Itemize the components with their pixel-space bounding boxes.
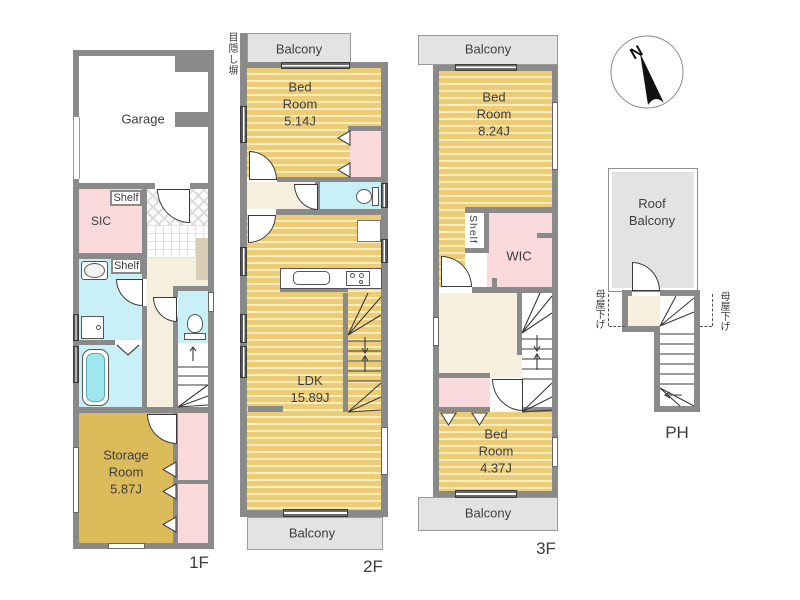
wall [190,183,208,189]
bathtub-inner [86,353,105,402]
toilet-2f-bowl [356,189,372,204]
closet-1f-lower [178,484,208,543]
window-bedroom-3f-small [552,437,558,467]
balcony-door-3f-south [455,490,517,498]
window-toilet-1f [208,292,214,312]
balcony-door-2f-north [281,62,350,69]
washing-machine-knob [96,325,101,330]
window-bedroom-3f-large [552,102,558,170]
closet-1f-upper [178,413,208,480]
ldk-label: LDK 15.89J [290,373,329,407]
floor-plan-canvas: Shelf Shelf Garage SIC Storage Room 5.87… [0,0,800,600]
balcony-label: Balcony [465,42,511,59]
stairs-3f [522,293,552,412]
wall [348,126,381,131]
storage-room-label: Storage Room 5.87J [103,448,149,499]
sic-label: SIC [91,214,111,230]
stairs-ph [660,296,694,406]
bedroom-2f-label: Bed Room 5.14J [283,80,318,131]
roof-lowering-left-label: 母屋下げ [591,289,606,339]
toilet-1f-tank [184,333,206,340]
floor-label-3f: 3F [536,538,556,560]
roof-balcony-label: Roof Balcony [629,196,675,230]
closet-door-mark-icon [163,517,176,532]
wall [79,340,115,345]
balcony-label: Balcony [276,42,322,59]
window-washroom [73,314,79,341]
wall [465,207,552,213]
wall [439,407,490,412]
garage-door-opening [73,117,80,179]
privacy-screen-wall [240,33,247,65]
entry-step [196,238,208,280]
balcony-door-3f-north [455,64,517,71]
roof-lowering-line [609,326,625,327]
closet-door-mark-icon [472,413,487,425]
wall [142,189,147,279]
closet-door-mark-icon [441,413,456,425]
closet-door-mark-icon [338,163,350,177]
toilet-1f-bowl [187,314,203,333]
washbasin-bowl [84,263,105,278]
roof-lowering-right-label: 母屋下げ [716,291,731,341]
window-ldk-west-2 [240,314,247,343]
shelf-box-1f-lower: Shelf [111,258,142,274]
stove-burner [359,273,364,278]
closet-door-mark-icon [163,484,176,499]
ph-landing [628,296,660,326]
floor-label-ph: PH [665,422,689,444]
wall [694,290,700,412]
compass-icon: N [610,33,690,117]
closet-door-mark-icon [163,462,176,477]
window-ldk-east-2 [381,427,388,475]
balcony-door-2f-south [283,509,348,517]
wall [248,406,283,412]
window-bedroom-2f [240,106,247,143]
door-bedroom-3f-small [492,379,523,411]
wic-label: WIC [506,249,531,266]
stove-burner [359,280,363,284]
wall [484,213,489,253]
wall [173,286,208,291]
wall [175,112,208,127]
wall [79,407,208,413]
wall [433,65,439,497]
hallway-3f [439,293,522,378]
roof-lowering-line [700,326,712,327]
stairs-2f [348,293,381,412]
floor-label-1f: 1F [189,552,209,574]
shelf-box-1f-upper: Shelf [110,190,142,206]
toilet-2f-tank [372,187,379,206]
bedroom-3f-large-label: Bed Room 8.24J [477,90,512,141]
wall [175,56,208,72]
shelf-label: Shelf [113,192,138,204]
wall [537,233,552,238]
wall [439,373,490,378]
window-ldk-west-3 [240,346,247,378]
stove-burner [350,273,355,278]
garage-label: Garage [121,112,164,129]
shelf-label: Shelf [114,260,139,272]
window-ldk-east-1 [381,239,388,263]
privacy-screen-label: 目隠し塀 [224,32,239,102]
balcony-label: Balcony [289,526,335,543]
window-storage-west [73,447,79,513]
wall [276,209,388,215]
wall [178,480,208,484]
roof-lowering-line [712,294,713,326]
window-hall-3f [433,317,439,346]
floor-label-2f: 2F [363,556,383,578]
window-toilet-2f [381,183,388,208]
balcony-label: Balcony [465,506,511,523]
closet-door-mark-icon [338,131,350,145]
window-storage-south [108,543,145,549]
refrigerator-space [357,220,381,242]
window-ldk-west-1 [240,247,247,276]
wall [142,306,147,407]
compass-needle-icon [640,53,664,105]
stairs-1f [178,343,208,407]
folding-door-bath-icon [117,345,139,356]
window-bathroom [73,346,79,383]
closet-2f [350,131,381,177]
wall [654,406,700,412]
kitchen-sink [293,271,330,285]
wall [277,177,388,182]
roof-lowering-line [608,294,609,326]
door-bedroom-3f-large [441,256,472,287]
bedroom-3f-small-label: Bed Room 4.37J [479,427,514,478]
shelf-3f-label: Shelf [467,215,479,249]
